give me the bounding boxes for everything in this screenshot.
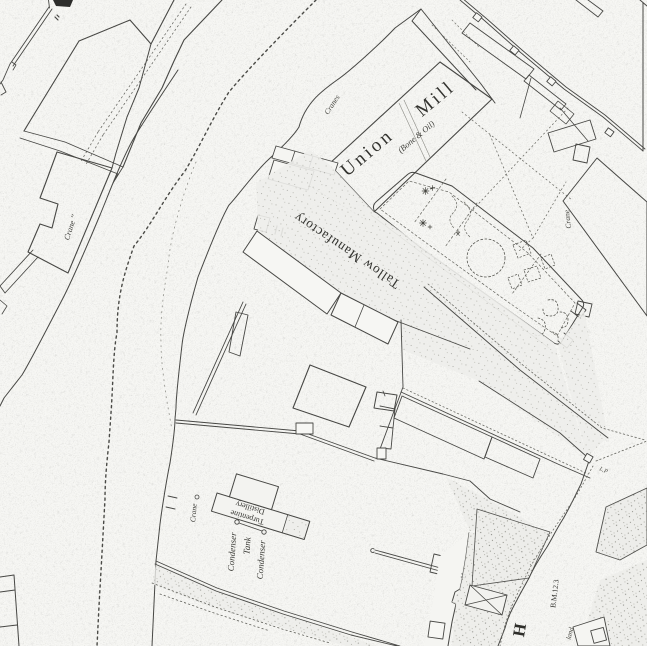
svg-text:Tank: Tank [241,536,252,555]
svg-text:Crane: Crane [188,502,199,522]
